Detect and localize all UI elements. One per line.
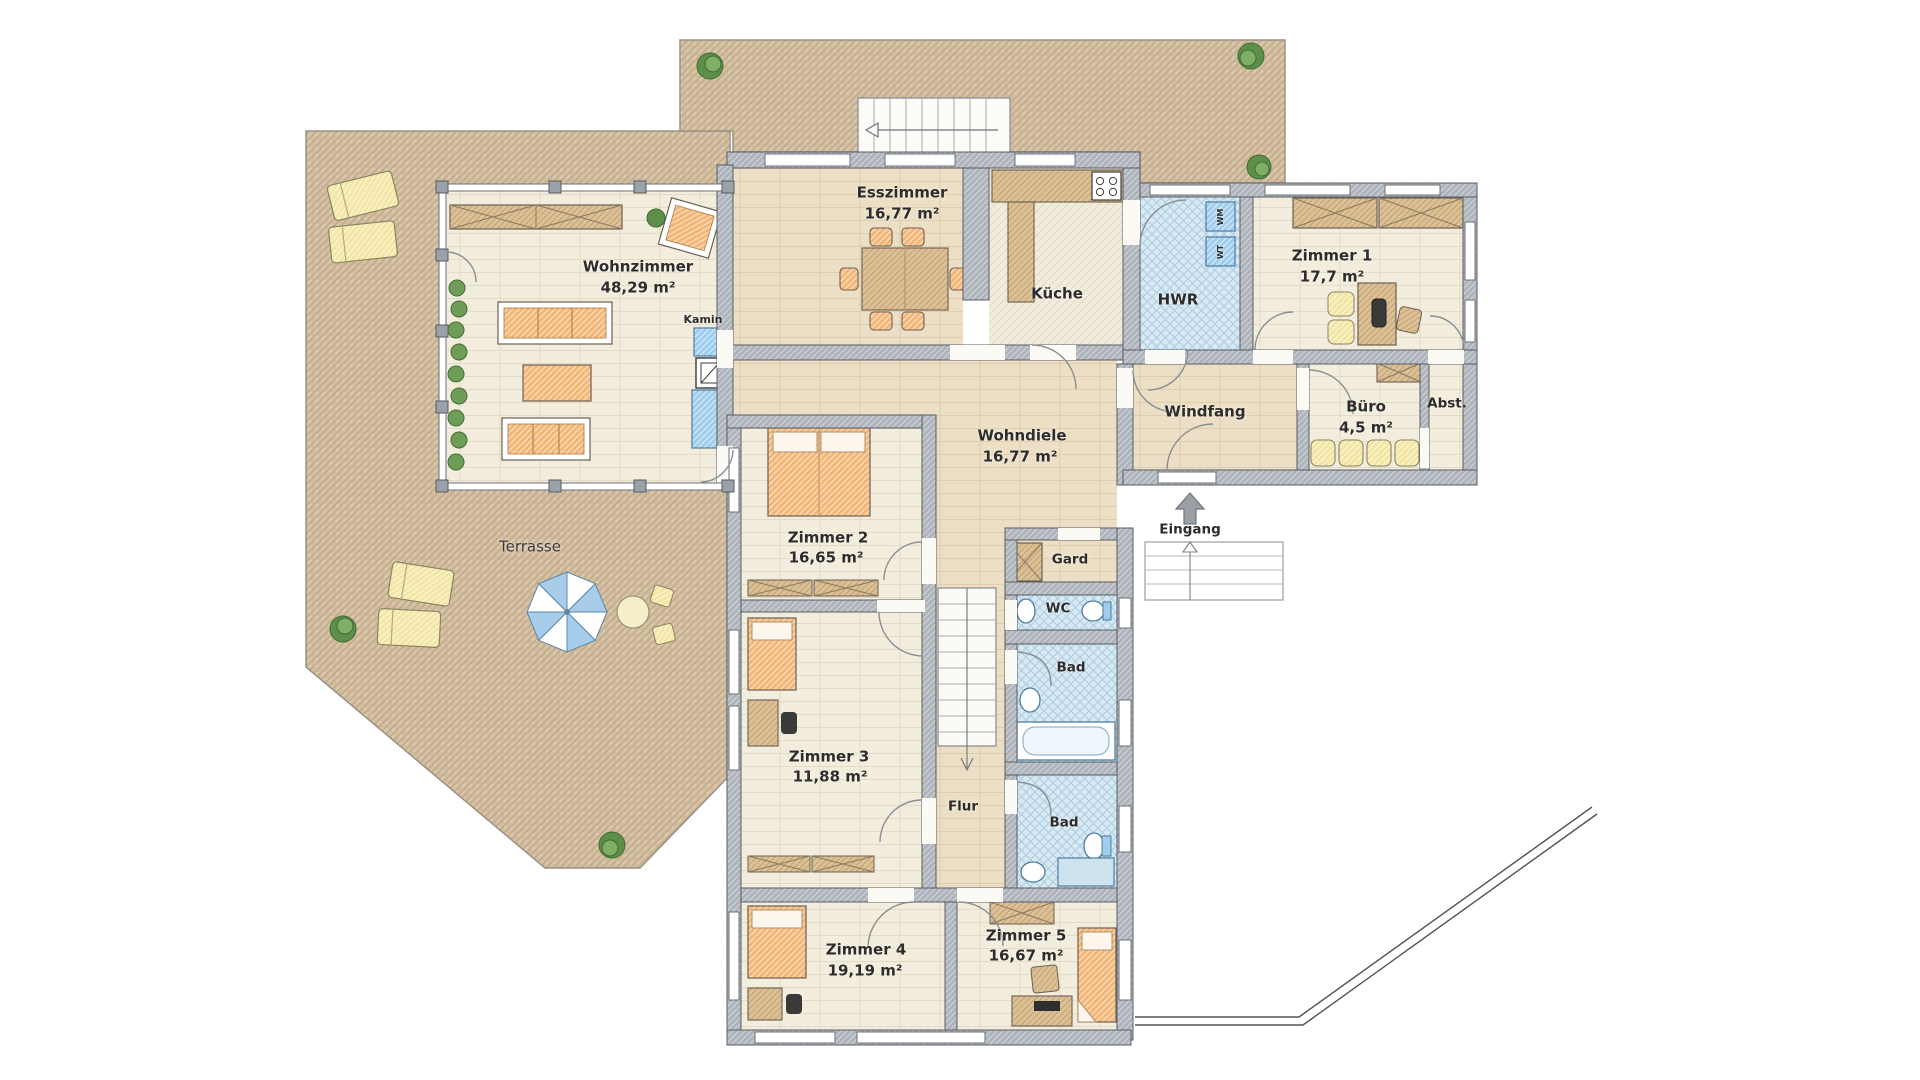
entrance-arrow-icon	[1176, 493, 1204, 524]
zimmer4-furniture	[748, 906, 806, 1020]
side-chair	[1396, 306, 1423, 334]
office-chair	[786, 994, 802, 1014]
room-label-zimmer3: Zimmer 3	[789, 748, 870, 767]
room-label-buero: Büro	[1346, 398, 1386, 417]
room-area-buero: 4,5 m²	[1339, 419, 1393, 438]
room-area-zimmer3: 11,88 m²	[793, 768, 868, 787]
property-boundary-line	[1135, 807, 1597, 1025]
wardrobe	[990, 902, 1054, 924]
feature-label-kamin: Kamin	[683, 313, 722, 327]
room-area-zimmer4: 19,19 m²	[828, 962, 903, 981]
chair	[1328, 292, 1354, 316]
room-label-wohnzimmer: Wohnzimmer	[583, 258, 693, 277]
office-chair	[781, 712, 797, 734]
room-label-gard: Gard	[1052, 552, 1089, 569]
room-area-wohndiele: 16,77 m²	[983, 448, 1058, 467]
indoor-plants	[448, 280, 467, 470]
desk	[748, 700, 778, 746]
sofa-small	[502, 418, 590, 460]
room-label-abst: Abst.	[1427, 396, 1467, 413]
room-label-flur: Flur	[948, 799, 978, 816]
room-area-zimmer1: 17,7 m²	[1300, 268, 1364, 287]
sofa-large	[498, 302, 612, 344]
double-bed	[768, 428, 870, 516]
room-label-windfang: Windfang	[1164, 403, 1245, 422]
room-label-zimmer5: Zimmer 5	[986, 927, 1067, 946]
keyboard	[1034, 1001, 1060, 1011]
office-chair	[1372, 299, 1386, 327]
room-area-wohnzimmer: 48,29 m²	[601, 279, 676, 298]
floor-plan: Wohnzimmer 48,29 m² Esszimmer 16,77 m² K…	[0, 0, 1920, 1080]
appliance-label-wm: WM	[1216, 209, 1226, 226]
room-label-zimmer2: Zimmer 2	[788, 529, 869, 548]
room-label-hwr: HWR	[1158, 291, 1199, 310]
room-label-esszimmer: Esszimmer	[857, 184, 948, 203]
outdoor-label-eingang: Eingang	[1159, 522, 1221, 539]
stove-icon	[1092, 172, 1121, 200]
coffee-table	[523, 365, 591, 401]
room-label-wohndiele: Wohndiele	[977, 427, 1066, 446]
wardrobe	[1377, 363, 1421, 382]
room-area-zimmer2: 16,65 m²	[789, 549, 864, 568]
room-area-zimmer5: 16,67 m²	[989, 947, 1064, 966]
sideboard	[450, 205, 622, 229]
umbrella-icon	[527, 572, 607, 652]
room-label-zimmer1: Zimmer 1	[1292, 247, 1373, 266]
room-label-bad-oben: Bad	[1056, 660, 1085, 677]
interior-stairs	[938, 588, 996, 770]
room-label-zimmer4: Zimmer 4	[826, 941, 907, 960]
room-area-esszimmer: 16,77 m²	[865, 205, 940, 224]
floor-plan-drawing	[0, 0, 1920, 1080]
chair	[1328, 320, 1354, 344]
single-bed	[748, 618, 796, 690]
entrance-steps	[1145, 542, 1283, 600]
desk	[748, 988, 782, 1020]
plant-icon	[647, 209, 665, 227]
room-label-bad-unten: Bad	[1049, 815, 1078, 832]
single-bed	[748, 906, 806, 978]
vanity	[1058, 858, 1114, 886]
single-bed	[1078, 928, 1116, 1022]
room-label-kueche: Küche	[1031, 285, 1083, 304]
appliance-label-wt: WT	[1216, 245, 1226, 259]
outdoor-label-terrasse: Terrasse	[499, 538, 561, 557]
room-label-wc: WC	[1046, 601, 1071, 618]
chair	[1031, 965, 1060, 994]
